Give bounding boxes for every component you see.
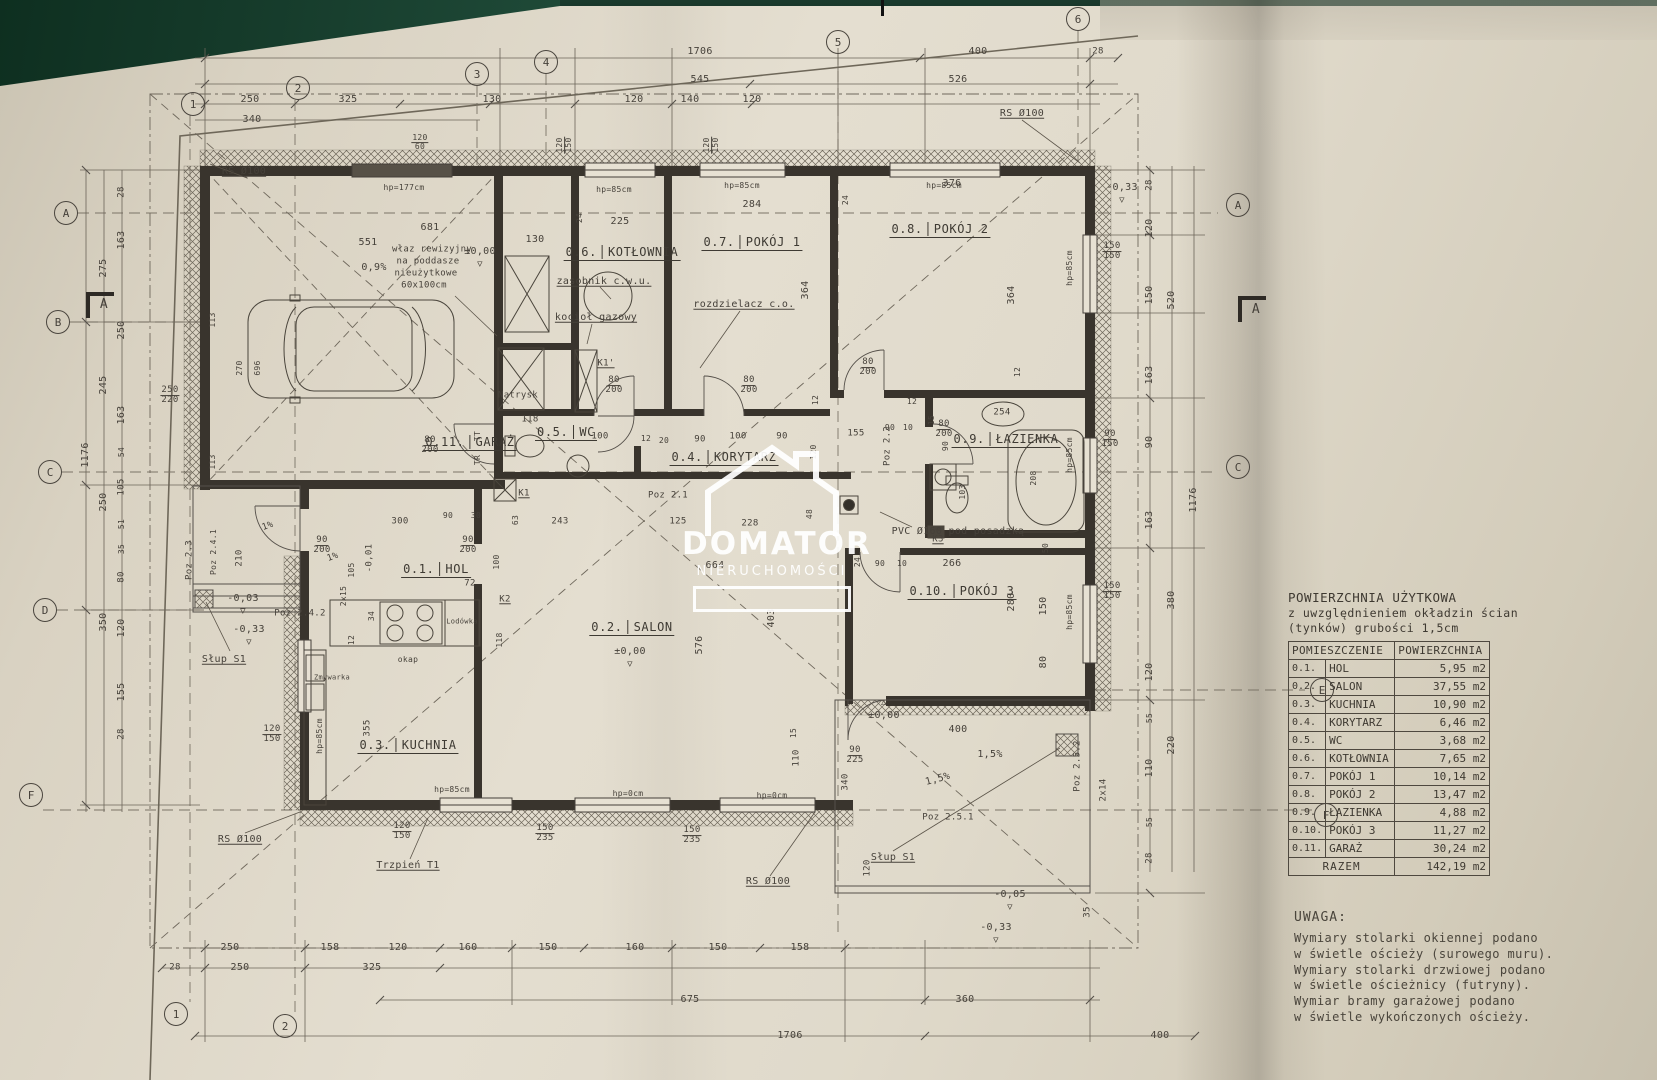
dim-label: nieużytkowe (395, 269, 458, 278)
dim-label: 90225 (846, 746, 863, 766)
dim-label: 220 (1167, 736, 1178, 755)
dim-label: 80200 (935, 420, 952, 440)
dim-label: 250 (221, 943, 240, 954)
dim-label: hp=85cm (1066, 250, 1074, 286)
dim-label: 140 (681, 95, 700, 106)
dim-label: 10 (903, 424, 913, 432)
dim-label: 35 (118, 544, 126, 554)
stove-icon (380, 602, 442, 644)
dim-label: Słup S1 (871, 853, 915, 864)
dim-label: 400 (969, 47, 988, 58)
table-row: 0.7.POKÓJ 110,14 m2 (1289, 768, 1490, 786)
car-icon (248, 295, 454, 403)
dim-label: 90200 (459, 536, 476, 556)
photo-background: 1706400285455262503251301201401203401206… (0, 0, 1657, 1080)
dim-label: 103 (959, 484, 967, 499)
dim-label: 34 (368, 611, 376, 621)
dim-label: A (1252, 303, 1260, 317)
dim-label: Poz 2.5.2 (1073, 740, 1082, 791)
dim-label: 163 (117, 231, 128, 250)
dim-label: 576 (695, 636, 706, 655)
note-line: Wymiary stolarki okiennej podano (1294, 931, 1553, 947)
dim-label: 51 (118, 519, 126, 529)
dim-label: 284 (743, 200, 762, 211)
dim-label: 28 (117, 186, 126, 197)
table-row: 0.1.HOL5,95 m2 (1289, 660, 1490, 678)
watermark-bar (693, 586, 851, 612)
dim-label: 150 (709, 943, 728, 954)
dim-label: 355 (363, 719, 372, 736)
dim-label: 28 (169, 963, 180, 972)
dim-label: 325 (339, 95, 358, 106)
dim-label: RS Ø100 (746, 877, 790, 888)
area-table-panel: POWIERZCHNIA UŻYTKOWA z uwzględnieniem o… (1288, 590, 1490, 876)
dim-label: -0,01 (365, 544, 374, 573)
dim-label: 12 (907, 398, 917, 406)
dim-label: 340 (841, 773, 850, 790)
dim-label: 120 (1145, 219, 1156, 238)
dim-label: 28 (1145, 179, 1154, 190)
dim-label: 12 (812, 395, 820, 405)
dim-label: 118 (496, 632, 504, 647)
note-line: w świetle ościeżnicy (futryny). (1294, 978, 1553, 994)
dim-label: Zmywarka (314, 674, 350, 681)
dim-label: 364 (1007, 286, 1018, 305)
dim-label: 80 (1039, 656, 1050, 669)
dim-label: 150235 (682, 826, 701, 846)
dim-label: hp=0cm (757, 792, 788, 800)
dim-label: 675 (681, 995, 700, 1006)
dim-label: 1176 (1189, 487, 1200, 512)
dim-label: 120 (389, 943, 408, 954)
dim-label: 80 (117, 571, 126, 582)
dim-label: 210 (235, 549, 244, 566)
dim-label: 90 (875, 560, 885, 568)
dim-label: 158 (791, 943, 810, 954)
dim-label: hp=85cm (434, 786, 470, 794)
dim-label: 110 (1145, 759, 1156, 778)
house-logo-icon (692, 440, 852, 540)
dim-label: 10 (897, 560, 907, 568)
dim-label: 118 (521, 415, 538, 424)
dim-label: 90 (443, 512, 453, 520)
dim-label: ±0,00 (614, 647, 646, 658)
dim-label: 110 (792, 749, 801, 766)
dim-label: 113 (209, 454, 217, 469)
note-line: Wymiar bramy garażowej podano (1294, 994, 1553, 1010)
dim-label: 55 (1146, 713, 1154, 723)
watermark-subtitle: NIERUCHOMOŚCI (682, 564, 862, 579)
dim-label: 526 (949, 75, 968, 86)
dim-label: 24 (576, 213, 584, 223)
dim-label: 250 (241, 95, 260, 106)
dim-label: 120150 (703, 136, 721, 153)
room-label: 0.6.KOTŁOWNIA (564, 245, 681, 261)
dim-label: TR (474, 455, 482, 465)
dim-label: 163 (1145, 366, 1156, 385)
area-table: POMIESZCZENIE POWIERZCHNIA 0.1.HOL5,95 m… (1288, 641, 1490, 876)
dim-label: -0,33 (1106, 183, 1138, 194)
dim-label: 400 (949, 725, 968, 736)
dim-label: hp=85cm (1066, 594, 1074, 630)
dim-label: K2 (499, 595, 510, 604)
dim-label: 270 (236, 360, 244, 375)
dim-label: △ (881, 698, 887, 707)
dim-label: hp=85cm (596, 186, 632, 194)
dim-label: 208 (1030, 470, 1038, 485)
dim-label: 266 (943, 559, 962, 570)
dim-label: na poddasze (397, 257, 460, 266)
dim-label: okap (398, 656, 418, 664)
dim-label: Poz 2.4.2 (274, 609, 325, 618)
table-row: 0.3.KUCHNIA10,90 m2 (1289, 696, 1490, 714)
dim-label: RS Ø100 (1000, 109, 1044, 120)
dim-label: hp=0cm (613, 790, 644, 798)
dim-label: 15 (790, 728, 798, 738)
dim-label: rozdzielacz c.o. (693, 300, 794, 311)
dim-label: hp=85cm (724, 182, 760, 190)
dim-label: Lodówka (446, 618, 478, 625)
col-header-room: POMIESZCZENIE (1289, 642, 1395, 660)
notes-lines: Wymiary stolarki okiennej podanow świetl… (1294, 931, 1553, 1026)
dim-label: -0,33 (233, 625, 265, 636)
table-row: 0.11.GARAŻ30,24 m2 (1289, 840, 1490, 858)
dim-label: 250 (117, 321, 128, 340)
dim-label: 60x100cm (401, 281, 447, 290)
dim-label: -0,05 (994, 890, 1026, 901)
dim-label: 158 (321, 943, 340, 954)
notes-block: UWAGA: Wymiary stolarki okiennej podanow… (1294, 910, 1553, 1026)
dim-label: 90 (885, 424, 895, 432)
dim-label: 105 (348, 562, 356, 577)
dim-label: 1176 (81, 442, 92, 467)
dim-label: 90200 (313, 536, 330, 556)
dim-label: 28 (1092, 47, 1103, 56)
dim-label: 80200 (605, 376, 622, 396)
dim-label: K1 (518, 489, 529, 498)
dim-label: 520 (1167, 291, 1178, 310)
dim-label: 80200 (859, 358, 876, 378)
dim-label: 28 (1145, 852, 1154, 863)
dim-label: 150235 (535, 824, 554, 844)
dim-label: 63 (512, 515, 520, 525)
dim-label: 55 (1146, 817, 1154, 827)
total-label: RAZEM (1289, 858, 1395, 876)
dim-label: 254 (993, 408, 1010, 417)
dim-label: 90 (1145, 436, 1156, 449)
dim-label: 250 (231, 963, 250, 974)
dim-label: ▽ (240, 607, 246, 616)
dim-label: 113 (209, 312, 217, 327)
dim-label: 24 (842, 195, 850, 205)
dim-label: 105 (117, 478, 126, 495)
table-row: 0.8.POKÓJ 213,47 m2 (1289, 786, 1490, 804)
room-label: 0.9.ŁAZIENKA (952, 432, 1061, 448)
table-title-3: (tynków) grubości 1,5cm (1288, 621, 1490, 635)
dim-label: 325 (363, 963, 382, 974)
table-title-1: POWIERZCHNIA UŻYTKOWA (1288, 590, 1490, 605)
room-label: 0.10.POKÓJ 3 (908, 584, 1017, 600)
dim-label: 155 (847, 429, 864, 438)
table-total-row: RAZEM 142,19 m2 (1289, 858, 1490, 876)
dim-label: ▽ (993, 936, 999, 945)
dim-label: K1' (597, 359, 614, 368)
dim-label: 545 (691, 75, 710, 86)
dim-label: 28 (117, 728, 126, 739)
dim-label: 12 (641, 435, 651, 443)
grid-bubble: 2 (286, 76, 310, 100)
dim-label: RS Ø100 (218, 835, 262, 846)
dim-label: Poz 2.4.1 (210, 529, 218, 575)
dim-label: kocioł gazowy (555, 313, 637, 324)
dim-label: 163 (117, 406, 128, 425)
grid-bubble: 6 (1066, 7, 1090, 31)
grid-bubble: 3 (465, 62, 489, 86)
dim-label: 150 (539, 943, 558, 954)
dimension-ticks (82, 54, 1199, 1040)
dim-label: Słup S1 (202, 655, 246, 666)
dim-label: 340 (243, 115, 262, 126)
dim-label: 12 (1014, 367, 1022, 377)
dim-label: RS Ø100 (222, 167, 266, 178)
dim-label: 400 (1151, 1031, 1170, 1042)
dim-label: 376 (943, 179, 962, 190)
dim-label: ±0,00 (868, 711, 900, 722)
dim-label: 130 (483, 95, 502, 106)
dim-label: 120 (625, 95, 644, 106)
grid-bubble: 1 (181, 92, 205, 116)
grid-bubble: B (46, 310, 70, 334)
watermark-title: DOMATOR (682, 526, 862, 562)
room-label: 0.3.KUCHNIA (357, 738, 458, 754)
dim-label: 250 (99, 493, 110, 512)
grid-bubble: 4 (534, 50, 558, 74)
dim-label: ▽ (1007, 903, 1013, 912)
dim-label: 12060 (411, 134, 428, 152)
table-row: 0.6.KOTŁOWNIA7,65 m2 (1289, 750, 1490, 768)
dim-label: 163 (1145, 511, 1156, 530)
grid-bubble: 5 (826, 30, 850, 54)
dim-label: 120150 (556, 136, 574, 153)
dim-label: 1,5% (977, 750, 1002, 761)
dim-label: 12 (348, 635, 356, 645)
dim-label: 225 (611, 217, 630, 228)
note-line: w świetle wykończonych ościeży. (1294, 1010, 1553, 1026)
dim-label: 150 (1145, 286, 1156, 305)
dim-label: 155 (117, 683, 128, 702)
notes-title: UWAGA: (1294, 910, 1553, 925)
table-row: 0.9.ŁAZIENKA4,88 m2 (1289, 804, 1490, 822)
dim-label: 150150 (1102, 582, 1121, 602)
room-label: 0.8.POKÓJ 2 (889, 222, 990, 238)
grid-bubble: 1 (164, 1002, 188, 1026)
dim-label: 364 (801, 281, 812, 300)
dim-label: 160 (459, 943, 478, 954)
washer-icon (930, 464, 956, 490)
dim-label: 245 (99, 376, 110, 395)
grid-bubble: A (54, 201, 78, 225)
table-row: 0.10.POKÓJ 311,27 m2 (1289, 822, 1490, 840)
dim-label: 80200 (740, 376, 757, 396)
dim-label: 120 (1145, 663, 1156, 682)
table-row: 0.2.SALON37,55 m2 (1289, 678, 1490, 696)
dim-label: 1706 (687, 47, 712, 58)
dim-label: 551 (359, 238, 378, 249)
dim-label: ▽ (627, 660, 633, 669)
dim-label: 2x14 (1099, 779, 1108, 802)
dim-label: 90 (942, 441, 950, 451)
dim-label: 120150 (262, 725, 281, 745)
room-label: 0.11.GARAŻ (423, 435, 516, 451)
dim-label: PVC Ø160 pod posadzką (892, 527, 1025, 538)
dim-label: 2x15 (340, 586, 348, 606)
dim-label: 130 (526, 235, 545, 246)
dim-label: -0,03 (227, 594, 259, 605)
dim-label: 150 (1039, 597, 1050, 616)
note-line: w świetle ościeży (surowego muru). (1294, 947, 1553, 963)
room-label: 0.2.SALON (589, 620, 674, 636)
dim-label: 30 (471, 512, 481, 520)
grid-bubble: 2 (273, 1014, 297, 1038)
grid-bubble: C (1226, 455, 1250, 479)
dim-label: 300 (391, 517, 408, 526)
dim-label: 696 (254, 360, 262, 375)
col-header-area: POWIERZCHNIA (1395, 642, 1490, 660)
dim-label: Natrysk (498, 391, 538, 400)
dim-label: zasobnik c.w.u. (557, 277, 652, 288)
dim-label: hp=85cm (316, 718, 324, 754)
dim-label: 350 (99, 613, 110, 632)
dim-label: ▽ (1119, 196, 1125, 205)
room-label: 0.7.POKÓJ 1 (701, 235, 802, 251)
dim-label: 15 (928, 415, 936, 425)
dim-label: 120 (863, 859, 872, 876)
grid-bubble: C (38, 460, 62, 484)
total-area: 142,19 m2 (1395, 858, 1490, 876)
dim-label: 120 (117, 619, 128, 638)
dim-label: 100 (493, 554, 501, 569)
table-row: 0.5.WC3,68 m2 (1289, 732, 1490, 750)
dim-label: 160 (626, 943, 645, 954)
dim-label: 275 (99, 259, 110, 278)
grid-bubble: F (19, 783, 43, 807)
dim-label: 90150 (1101, 430, 1118, 450)
dim-label: 20 (659, 437, 669, 445)
dim-label: 360 (956, 995, 975, 1006)
dim-label: A (100, 298, 108, 312)
grid-bubble: D (33, 598, 57, 622)
room-label: 0.5.WC (535, 425, 597, 441)
table-row: 0.4.KORYTARZ6,46 m2 (1289, 714, 1490, 732)
dim-label: właz rewizyjny (392, 245, 472, 254)
dim-label: 50 (1042, 543, 1050, 553)
dim-label: 243 (551, 517, 568, 526)
dim-label: -0,33 (980, 923, 1012, 934)
dim-label: 72 (464, 579, 475, 588)
dim-label: ▽ (246, 638, 252, 647)
domator-watermark: DOMATOR NIERUCHOMOŚCI (682, 440, 862, 612)
dim-label: 120150 (392, 822, 411, 842)
dim-label: 380 (1167, 591, 1178, 610)
dim-label: 1706 (777, 1031, 802, 1042)
dim-label: hp=177cm (384, 184, 425, 192)
dim-label: 120 (743, 95, 762, 106)
dim-label: 250220 (160, 386, 179, 406)
dim-label: Trzpień T1 (376, 861, 439, 872)
room-label: 0.1.HOL (401, 562, 471, 578)
dim-label: 150150 (1102, 242, 1121, 262)
dim-label: hp=85cm (1066, 437, 1074, 473)
dim-label: 0,9% (361, 263, 386, 274)
dim-label: 54 (118, 447, 126, 457)
note-line: Wymiary stolarki drzwiowej podano (1294, 963, 1553, 979)
dim-label: 35 (1083, 906, 1092, 917)
dim-label: Poz 2.5.1 (922, 813, 973, 822)
dim-label: 681 (421, 223, 440, 234)
dim-label: ▽ (477, 260, 483, 269)
table-title-2: z uwzględnieniem okładzin ścian (1288, 606, 1490, 620)
dim-label: Poz 2.3 (185, 540, 194, 580)
grid-bubble: A (1226, 193, 1250, 217)
